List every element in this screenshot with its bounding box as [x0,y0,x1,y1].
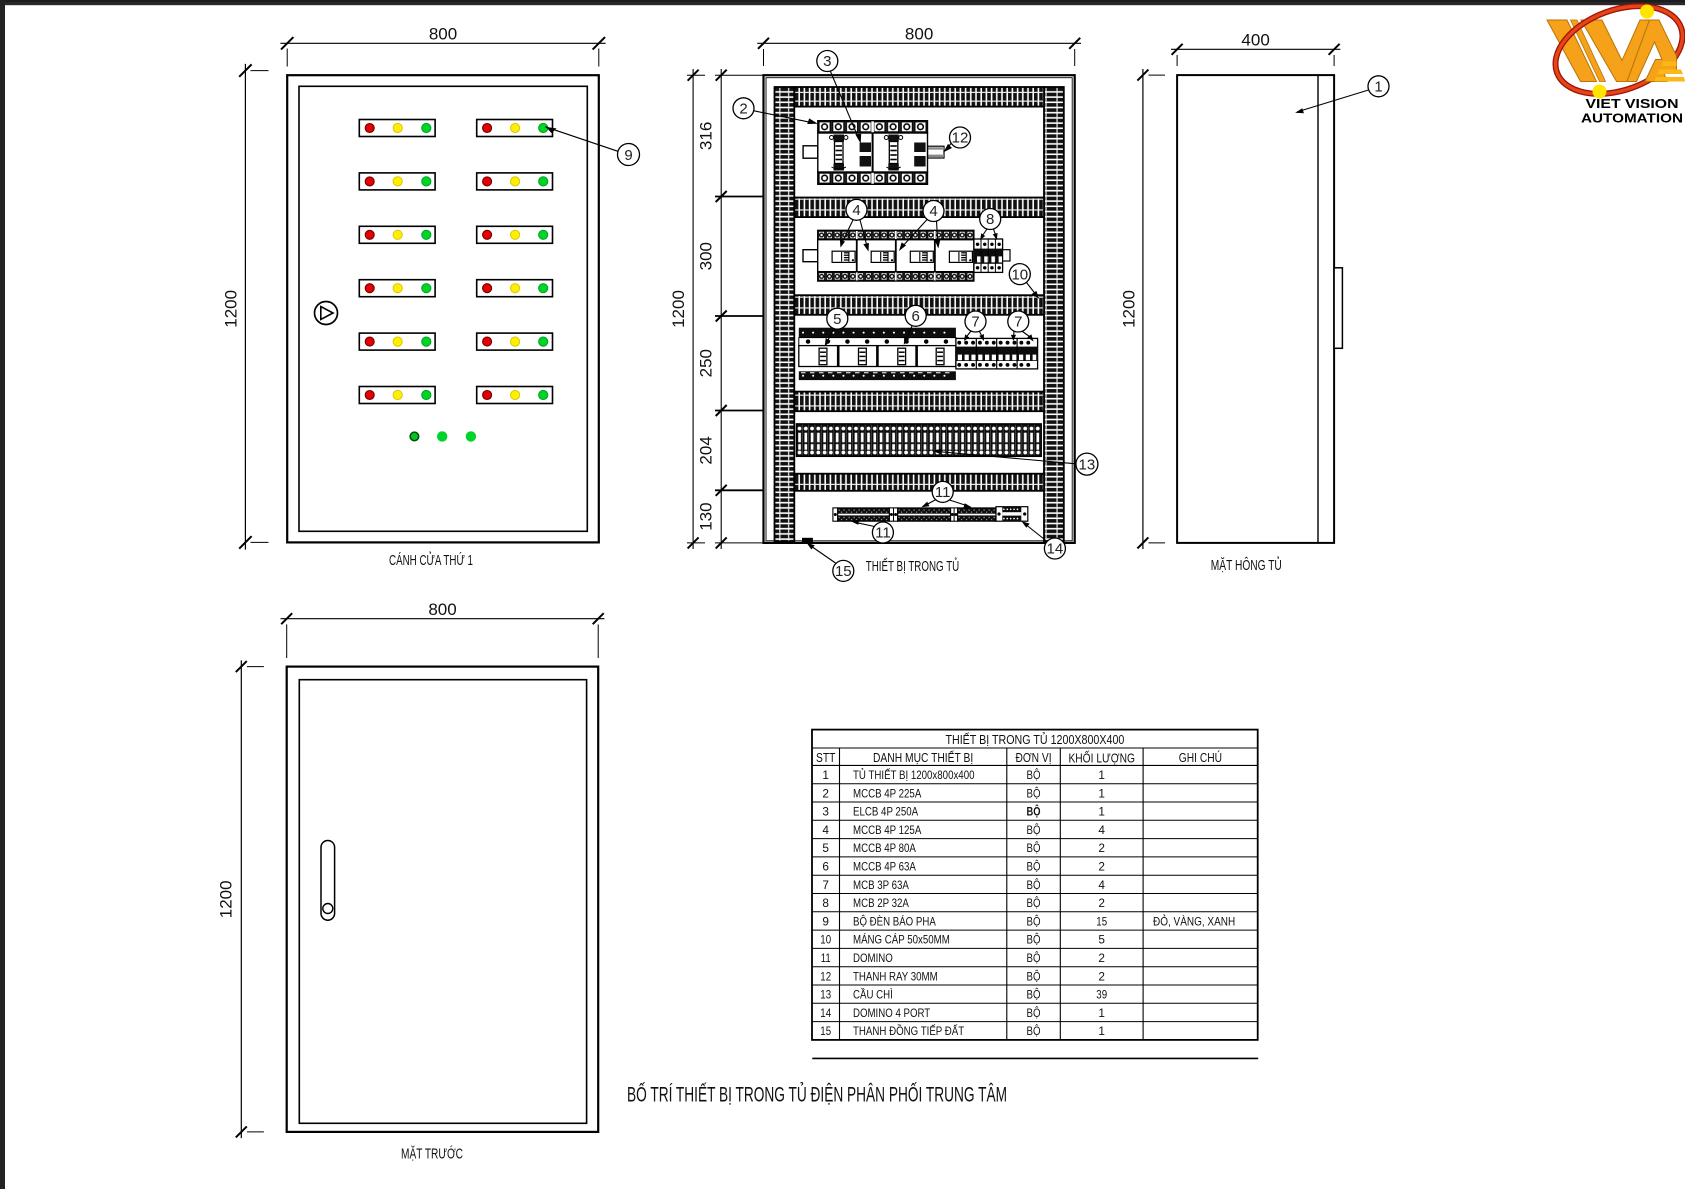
svg-text:BỘ ĐÈN BÁO PHA: BỘ ĐÈN BÁO PHA [853,914,936,928]
svg-text:THIẾT BỊ TRONG TỦ: THIẾT BỊ TRONG TỦ [866,557,960,575]
svg-text:2: 2 [822,786,829,800]
svg-text:12: 12 [820,969,831,983]
svg-text:10: 10 [820,933,831,947]
svg-text:BỘ: BỘ [1027,768,1041,782]
svg-text:15: 15 [835,563,852,580]
svg-text:TỦ THIẾT BỊ 1200x800x400: TỦ THIẾT BỊ 1200x800x400 [853,768,975,782]
svg-text:800: 800 [428,600,456,619]
svg-text:300: 300 [697,242,716,270]
svg-text:MẶT HÔNG TỦ: MẶT HÔNG TỦ [1211,556,1282,574]
svg-text:MCCB 4P 125A: MCCB 4P 125A [853,823,921,837]
svg-text:BỘ: BỘ [1027,933,1041,947]
svg-text:10: 10 [1011,266,1028,283]
svg-text:2: 2 [739,101,747,118]
svg-text:7: 7 [822,878,829,892]
svg-text:4: 4 [822,823,829,837]
svg-text:DOMINO: DOMINO [853,951,893,965]
svg-text:6: 6 [912,308,920,325]
svg-text:BỘ: BỘ [1027,914,1041,928]
svg-text:1: 1 [1098,1024,1105,1038]
svg-text:316: 316 [697,122,716,150]
svg-text:MCCB 4P 63A: MCCB 4P 63A [853,860,916,874]
svg-text:13: 13 [820,988,831,1002]
svg-text:6: 6 [822,860,829,874]
svg-text:7: 7 [971,314,979,331]
svg-text:8: 8 [986,211,994,228]
svg-text:BỘ: BỘ [1027,786,1041,800]
svg-text:CÁNH CỬA THỨ 1: CÁNH CỬA THỨ 1 [389,551,473,569]
svg-text:9: 9 [624,147,632,164]
svg-text:5: 5 [1098,933,1105,947]
svg-text:BỘ: BỘ [1027,823,1041,837]
svg-text:14: 14 [1047,541,1064,558]
svg-text:ĐỎ, VÀNG, XANH: ĐỎ, VÀNG, XANH [1153,914,1235,928]
svg-text:MẶT TRƯỚC: MẶT TRƯỚC [401,1146,463,1163]
svg-text:AUTOMATION: AUTOMATION [1581,111,1683,126]
svg-text:1: 1 [1098,786,1105,800]
svg-text:3: 3 [822,805,829,819]
svg-text:1: 1 [1098,805,1105,819]
svg-text:1200: 1200 [217,880,236,918]
svg-text:VIET VISION: VIET VISION [1586,96,1679,111]
svg-text:1200: 1200 [1120,290,1139,328]
svg-text:2: 2 [1098,841,1105,855]
svg-text:2: 2 [1098,969,1105,983]
svg-text:MÁNG CÁP 50x50MM: MÁNG CÁP 50x50MM [853,933,950,947]
svg-text:5: 5 [833,311,841,328]
svg-text:MCCB 4P 80A: MCCB 4P 80A [853,841,916,855]
svg-text:4: 4 [852,202,860,219]
svg-text:11: 11 [875,525,891,542]
svg-text:GHI CHÚ: GHI CHÚ [1179,750,1222,765]
svg-text:800: 800 [429,25,457,44]
svg-text:2: 2 [1098,896,1105,910]
svg-text:4: 4 [929,203,937,220]
svg-text:ĐƠN VỊ: ĐƠN VỊ [1015,751,1051,765]
svg-text:2: 2 [1098,860,1105,874]
svg-text:3: 3 [823,53,831,70]
svg-text:THANH ĐỒNG TIẾP ĐẤT: THANH ĐỒNG TIẾP ĐẤT [853,1024,964,1038]
svg-text:15: 15 [820,1024,831,1038]
svg-text:THIẾT BỊ TRONG TỦ 1200X800X400: THIẾT BỊ TRONG TỦ 1200X800X400 [945,732,1124,747]
svg-text:400: 400 [1241,31,1269,50]
svg-text:MCB 3P 63A: MCB 3P 63A [853,878,909,892]
svg-text:1: 1 [822,768,829,782]
svg-text:204: 204 [697,436,716,464]
svg-text:STT: STT [816,751,836,765]
svg-text:14: 14 [820,1006,831,1020]
svg-text:MCB 2P 32A: MCB 2P 32A [853,896,909,910]
svg-text:BỘ: BỘ [1027,969,1041,983]
svg-text:250: 250 [697,349,716,377]
svg-text:BỘ: BỘ [1027,860,1041,874]
svg-text:1: 1 [1098,1006,1105,1020]
svg-text:DANH MỤC THIẾT BỊ: DANH MỤC THIẾT BỊ [873,750,973,765]
svg-text:2: 2 [1098,951,1105,965]
svg-text:11: 11 [821,951,831,965]
svg-text:1200: 1200 [222,290,241,328]
svg-text:BỘ: BỘ [1027,1006,1041,1020]
svg-text:CẦU CHÌ: CẦU CHÌ [853,988,893,1002]
svg-text:ELCB 4P 250A: ELCB 4P 250A [853,805,918,819]
svg-text:BỘ: BỘ [1027,896,1041,910]
svg-text:1: 1 [1374,79,1382,96]
svg-text:800: 800 [905,25,933,44]
svg-text:BỘ: BỘ [1027,841,1041,855]
svg-text:9: 9 [822,914,829,928]
svg-text:BỘ: BỘ [1027,1024,1041,1038]
svg-text:5: 5 [822,841,829,855]
svg-text:1200: 1200 [669,290,688,328]
svg-text:KHỐI LƯỢNG: KHỐI LƯỢNG [1068,751,1135,766]
svg-text:MCCB 4P 225A: MCCB 4P 225A [853,786,921,800]
svg-text:8: 8 [822,896,829,910]
svg-text:13: 13 [1079,456,1096,473]
svg-text:BỘ: BỘ [1027,988,1041,1002]
svg-text:DOMINO 4 PORT: DOMINO 4 PORT [853,1006,930,1020]
svg-text:4: 4 [1098,878,1105,892]
svg-text:15: 15 [1096,914,1107,928]
svg-text:BỘ: BỘ [1027,805,1041,819]
svg-text:7: 7 [1014,314,1022,331]
svg-text:THANH RAY 30MM: THANH RAY 30MM [853,969,938,983]
svg-text:BỐ TRÍ THIẾT BỊ TRONG TỦ ĐIỆN: BỐ TRÍ THIẾT BỊ TRONG TỦ ĐIỆN PHÂN PHỐI … [627,1083,1007,1107]
svg-text:12: 12 [952,130,969,147]
svg-text:39: 39 [1096,988,1107,1002]
svg-text:1: 1 [1098,768,1105,782]
svg-text:BỘ: BỘ [1027,878,1041,892]
svg-text:4: 4 [1098,823,1105,837]
svg-text:130: 130 [697,502,716,530]
svg-text:BỘ: BỘ [1027,951,1041,965]
svg-text:11: 11 [935,484,951,501]
